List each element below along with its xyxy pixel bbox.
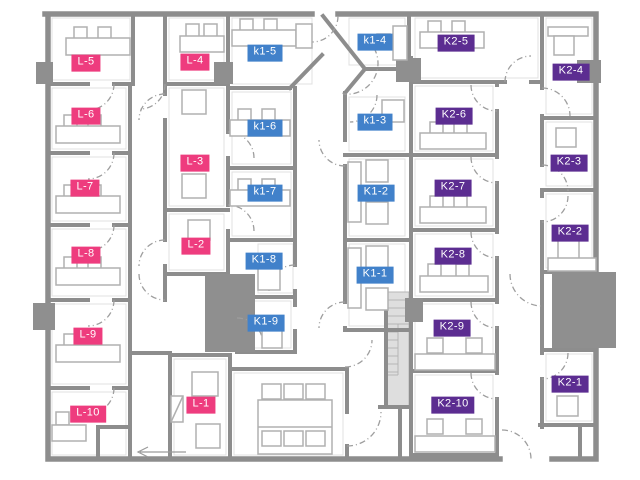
room-badge-L-4[interactable]: L-4 <box>180 54 209 71</box>
elevator-shaft <box>552 272 616 348</box>
desk-icon <box>415 338 495 370</box>
room-badge-K2-7[interactable]: K2-7 <box>435 180 472 197</box>
service-shaft <box>205 274 255 352</box>
room-badge-L-9[interactable]: L-9 <box>73 328 102 345</box>
desk-icon <box>180 24 224 52</box>
room-badge-K2-5[interactable]: K2-5 <box>438 35 475 52</box>
room-badge-K2-4[interactable]: K2-4 <box>553 64 590 81</box>
pillars <box>33 58 601 330</box>
cabinet-icon <box>171 396 183 422</box>
desk-icon <box>556 128 576 147</box>
room-badge-K2-2[interactable]: K2-2 <box>552 225 589 242</box>
room-badge-L-7[interactable]: L-7 <box>70 180 99 197</box>
room-badge-K1-9[interactable]: K1-9 <box>248 315 285 332</box>
desk-icon <box>548 240 596 271</box>
room-badge-k1-6[interactable]: k1-6 <box>248 120 283 137</box>
desk-icon <box>557 396 578 416</box>
desk-icon <box>262 330 282 348</box>
room-badge-L-1[interactable]: L-1 <box>186 397 215 414</box>
conference-table-icon <box>258 384 332 454</box>
room-badge-L-3[interactable]: L-3 <box>180 155 209 172</box>
room-badge-K1-1[interactable]: K1-1 <box>357 267 394 284</box>
room-badge-k1-4[interactable]: k1-4 <box>358 34 393 51</box>
room-badge-K2-1[interactable]: K2-1 <box>552 376 589 393</box>
desk-icon <box>415 419 495 452</box>
desk-icon <box>420 196 486 223</box>
desk-icon <box>420 264 488 292</box>
desk-icon <box>420 122 486 149</box>
desk-icon <box>196 424 220 448</box>
desk-icon <box>258 268 280 290</box>
desk-icon <box>182 90 206 114</box>
room-badge-K2-3[interactable]: K2-3 <box>551 155 588 172</box>
room-badge-K2-10[interactable]: K2-10 <box>431 397 474 414</box>
room-badge-K2-9[interactable]: K2-9 <box>434 320 471 337</box>
room-badge-L-5[interactable]: L-5 <box>71 55 100 72</box>
room-badge-K2-6[interactable]: K2-6 <box>436 108 473 125</box>
room-badge-L-2[interactable]: L-2 <box>181 238 210 255</box>
desk-icon <box>192 372 218 396</box>
desk-icon <box>182 174 206 198</box>
desk-icon <box>548 27 588 55</box>
room-badge-L-10[interactable]: L-10 <box>70 406 106 423</box>
floor-plan: L-1 L-2 L-3 L-4 L-5 L-6 L-7 L-8 L-9 L-10… <box>0 0 640 480</box>
room-badge-K1-8[interactable]: K1-8 <box>246 253 283 270</box>
room-badge-k1-5[interactable]: k1-5 <box>248 45 283 62</box>
room-badge-K1-2[interactable]: K1-2 <box>358 185 395 202</box>
room-badge-k1-7[interactable]: k1-7 <box>248 185 283 202</box>
room-badge-L-6[interactable]: L-6 <box>71 108 100 125</box>
desk-icon <box>66 27 130 55</box>
room-badge-L-8[interactable]: L-8 <box>71 247 100 264</box>
room-badge-K2-8[interactable]: K2-8 <box>435 248 472 265</box>
room-badge-k1-3[interactable]: k1-3 <box>358 114 393 131</box>
